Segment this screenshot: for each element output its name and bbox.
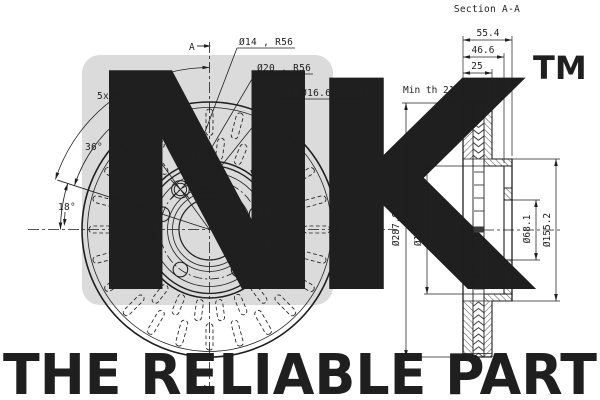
bolt-pattern-angle-label: 5x72° (97, 91, 127, 102)
dim-thickness: 25 (471, 61, 482, 72)
trademark-symbol: TM (533, 49, 587, 87)
section-marker-top: A (189, 42, 195, 53)
dim-inner-diameter: Ø145.8 (413, 212, 424, 247)
bolt-holes-label: 5 X Ø16.6 , R56 (277, 88, 367, 99)
angle-36-label: 36° (85, 142, 103, 153)
dim-hat-diameter: Ø155.2 (542, 213, 553, 247)
dim-outer-diameter: Ø287.8 (391, 212, 402, 247)
hole-d20-label: Ø20 , R56 (257, 63, 311, 74)
brake-disc-technical-drawing: N K TM THE RELIABLE PART 5x72° 36° 18° Ø… (0, 0, 600, 400)
hole-d14-label: Ø14 , R56 (239, 37, 293, 48)
drawing-canvas: N K TM THE RELIABLE PART 5x72° 36° 18° Ø… (0, 0, 600, 400)
dim-bore-diameter: Ø68.1 (522, 214, 533, 243)
tagline-watermark: THE RELIABLE PART (3, 343, 597, 400)
angle-18-label: 18° (58, 202, 76, 213)
nk-logo-letter-k: K (303, 21, 539, 358)
section-marker-bottom: A (189, 382, 195, 393)
dim-hat-height: 46.6 (472, 45, 495, 56)
section-title: Section A-A (454, 4, 520, 15)
dim-overall-height: 55.4 (477, 28, 500, 39)
dim-min-thickness: Min th 21 (403, 85, 455, 96)
